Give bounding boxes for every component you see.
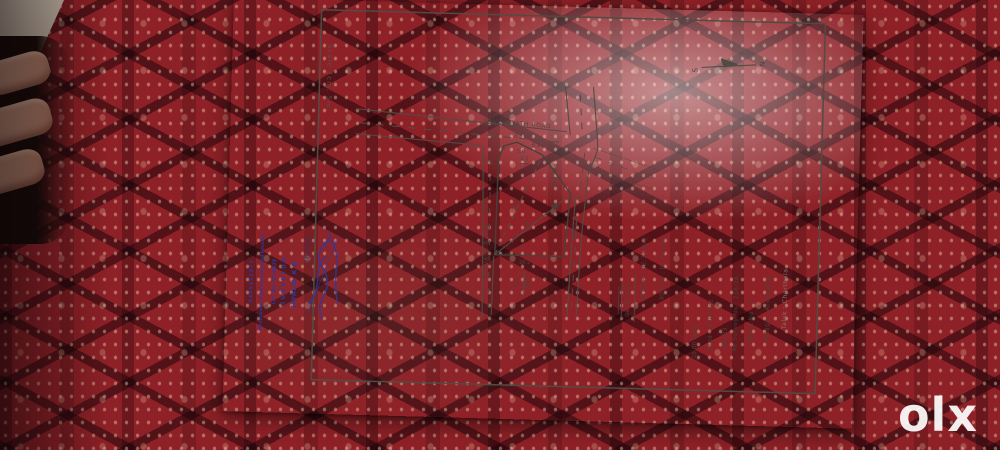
parcel-label-numerator: 907 xyxy=(526,277,532,288)
area-list-total: 04.05 Are xyxy=(625,284,632,317)
dim-diag-solid: 24 xyxy=(526,221,532,228)
dim-west: 24.0 xyxy=(484,198,490,210)
dim-jog: 1.5 xyxy=(498,146,506,151)
title-area-cents: (10.00 Cent) xyxy=(692,323,699,361)
dim-ne1: 8.3 xyxy=(555,163,560,171)
dim-left-out: 5.5 xyxy=(483,159,492,165)
dim-seg1: 3.3 xyxy=(514,134,523,140)
dim-inner1: 5.8 xyxy=(517,150,525,155)
dim-seg2: 6.2 xyxy=(531,144,540,150)
survey-paper: Scale 1cm: 5m. S N PANCHAYATH ROAD PRIVA… xyxy=(222,0,863,429)
title-block-no: Block No : 5 xyxy=(748,299,755,342)
south-label: S xyxy=(692,68,699,73)
dim-ne2: 14.0 xyxy=(553,177,558,188)
dim-inner2: 5.5 xyxy=(520,157,528,164)
parcel-label-denominator: 23 xyxy=(515,280,521,287)
north-label: N xyxy=(760,61,767,66)
signature xyxy=(307,232,339,318)
title-resurvey-2: 907/23 xyxy=(722,328,729,349)
survey-drawing xyxy=(222,0,863,429)
dim-south: 16.2 xyxy=(518,261,530,267)
dim-east: 16.5 xyxy=(573,223,579,235)
dim-diag-dashed: 27.3 xyxy=(513,198,519,210)
scale-note: Scale 1cm: 5m. xyxy=(324,44,333,112)
stamp-date: 16-2-24 xyxy=(304,238,311,264)
photo-background: Scale 1cm: 5m. S N PANCHAYATH ROAD PRIVA… xyxy=(0,0,1000,450)
olx-watermark: olx xyxy=(898,388,978,442)
